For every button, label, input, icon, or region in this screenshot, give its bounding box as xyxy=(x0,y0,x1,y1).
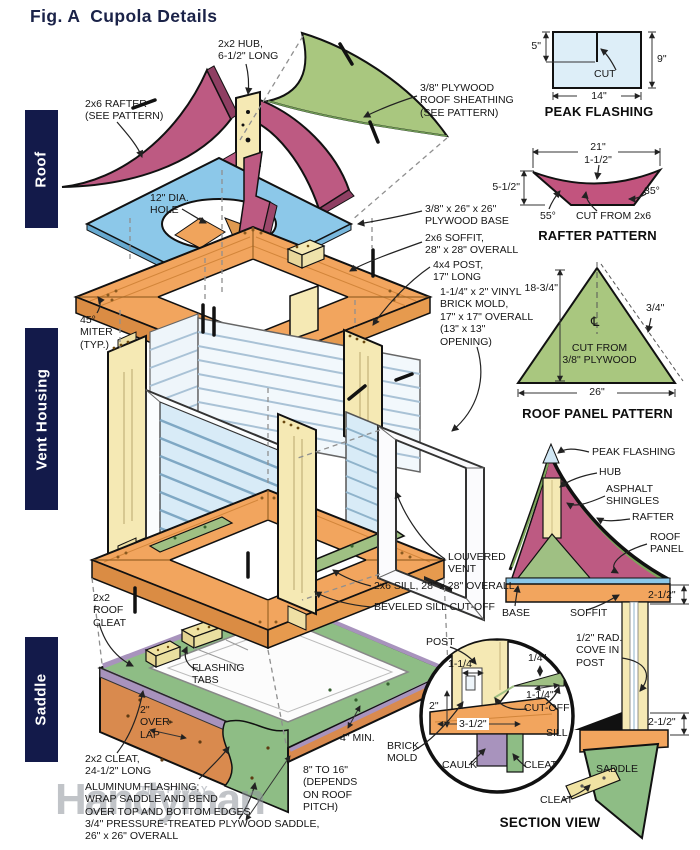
callout-rafter: 2x6 RAFTER (SEE PATTERN) xyxy=(85,98,163,123)
sv-dim-c: 1-1/4" xyxy=(526,689,554,701)
sv-dim-b: 1/4" xyxy=(528,652,546,664)
callout-soffit: 2x6 SOFFIT, 28" x 28" OVERALL xyxy=(425,232,518,257)
sv-caulk: CAULK xyxy=(442,759,477,771)
sv-dim-d: 2" xyxy=(429,700,439,712)
sv-post: POST xyxy=(426,636,455,648)
callout-hub: 2x2 HUB, 6-1/2" LONG xyxy=(218,38,278,63)
pf-title: PEAK FLASHING xyxy=(540,104,658,119)
callout-sill: 2x6 SILL, 28" x 28" OVERALL xyxy=(374,580,515,592)
callout-min-4: 4" MIN. xyxy=(340,732,375,744)
callout-aluminum-flashing: ALUMINUM FLASHING; WRAP SADDLE AND BEND … xyxy=(85,781,251,818)
rp-dim-center: 1-1/2" xyxy=(580,154,616,166)
rp-cut-note: CUT FROM 2x6 xyxy=(576,210,651,222)
pf-cut-label: CUT xyxy=(594,68,616,80)
callout-brick-mold: 1-1/4" x 2" VINYL BRICK MOLD, 17" x 17" … xyxy=(440,286,533,348)
pf-dim-bottom: 14" xyxy=(577,90,621,102)
rpp-dim-edge: 3/4" xyxy=(646,302,664,314)
sv-peak-flashing: PEAK FLASHING xyxy=(592,446,675,458)
pf-dim-right: 9" xyxy=(657,53,667,65)
rpp-centerline: ℄ xyxy=(591,314,599,329)
rpp-dim-base: 26" xyxy=(577,386,617,398)
page-title: Fig. A Cupola Details xyxy=(30,6,217,27)
sv-dim-lower: 2-1/2" xyxy=(648,716,676,728)
sv-shingles: ASPHALT SHINGLES xyxy=(606,483,659,508)
rpp-title: ROOF PANEL PATTERN xyxy=(505,406,690,421)
sv-soffit: SOFFIT xyxy=(570,607,607,619)
rp-title: RAFTER PATTERN xyxy=(530,228,665,243)
callout-roof-cleat: 2x2 ROOF CLEAT xyxy=(93,592,126,629)
callout-plywood-saddle: 3/4" PRESSURE-TREATED PLYWOOD SADDLE, 26… xyxy=(85,818,319,843)
callout-beveled-cutoff: BEVELED SILL CUT-OFF xyxy=(374,601,495,613)
post-left xyxy=(108,332,146,564)
section-bar-saddle-label: Saddle xyxy=(33,673,50,725)
callout-cleat: 2x2 CLEAT, 24-1/2" LONG xyxy=(85,753,151,778)
callout-flashing-tabs: FLASHING TABS xyxy=(192,662,245,687)
sv-cutoff: CUT-OFF xyxy=(524,702,570,714)
callout-plywood-base: 3/8" x 26" x 26" PLYWOOD BASE xyxy=(425,203,509,228)
sv-roof-panel: ROOF PANEL xyxy=(650,531,684,556)
section-bar-roof: Roof xyxy=(25,110,58,228)
rpp-dim-height: 18-3/4" xyxy=(516,282,558,294)
sv-rafter: RAFTER xyxy=(632,511,674,523)
rp-dim-height: 5-1/2" xyxy=(488,181,520,193)
sv-title: SECTION VIEW xyxy=(470,815,630,830)
sv-hub: HUB xyxy=(599,466,621,478)
sv-dim-e: 3-1/2" xyxy=(457,718,489,730)
section-bar-roof-label: Roof xyxy=(33,151,50,187)
callout-miter: 45° MITER (TYP.) xyxy=(80,314,113,351)
sv-cleat-upper: CLEAT xyxy=(524,759,557,771)
sv-sill: SILL xyxy=(546,727,568,739)
back-post xyxy=(290,286,318,340)
callout-post: 4x4 POST, 17" LONG xyxy=(433,259,483,284)
callout-pitch-range: 8" TO 16" (DEPENDS ON ROOF PITCH) xyxy=(303,764,357,814)
sv-brick-mold: BRICK MOLD xyxy=(387,740,419,765)
rp-angle-left: 55° xyxy=(540,210,556,222)
sv-base: BASE xyxy=(502,607,530,619)
callout-roof-sheathing: 3/8" PLYWOOD ROOF SHEATHING (SEE PATTERN… xyxy=(420,82,514,119)
sv-saddle: SADDLE xyxy=(596,763,638,775)
figure-page: Fig. A Cupola Details Roof Vent Housing … xyxy=(0,0,700,850)
section-bar-vent-housing-label: Vent Housing xyxy=(33,368,50,470)
callout-louvered-vent: LOUVERED VENT xyxy=(448,551,506,576)
sv-cleat-lower: CLEAT xyxy=(540,794,573,806)
sv-dim-upper: 2-1/2" xyxy=(648,589,676,601)
rp-dim-width: 21" xyxy=(578,141,618,153)
pf-dim-left: 5" xyxy=(525,40,541,52)
sv-cove: 1/2" RAD. COVE IN POST xyxy=(576,632,622,669)
rpp-cut-note: CUT FROM 3/8" PLYWOOD xyxy=(557,342,642,367)
rp-angle-right: 35° xyxy=(644,185,660,197)
sv-dim-a: 1-1/4" xyxy=(448,658,476,670)
diagram-canvas xyxy=(0,0,700,850)
section-bar-vent-housing: Vent Housing xyxy=(25,328,58,510)
section-bar-saddle: Saddle xyxy=(25,637,58,762)
callout-hole: 12" DIA. HOLE xyxy=(150,192,189,217)
callout-overlap: 2" OVER- LAP xyxy=(140,704,173,741)
